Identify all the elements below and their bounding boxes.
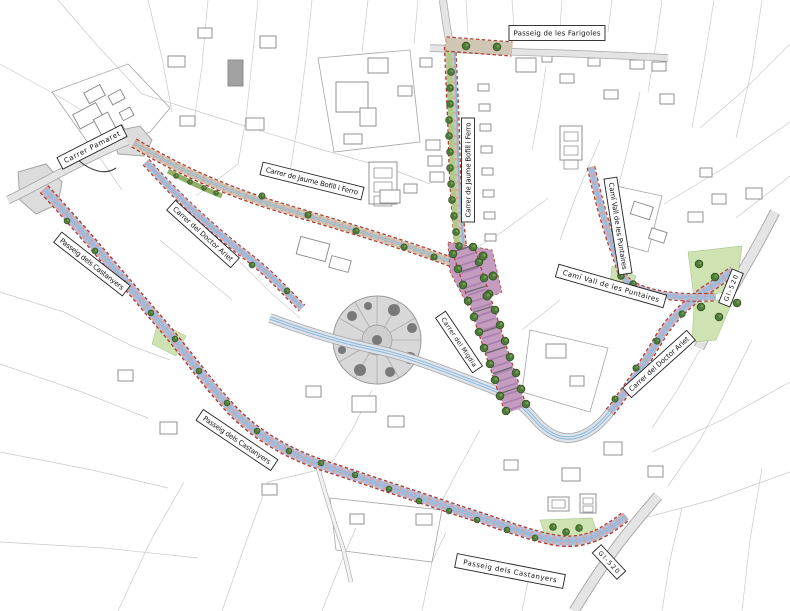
street-label-jaume-bofill-2: Carrer de Jaume Bofill i Ferro — [462, 118, 475, 222]
tree-icon — [563, 529, 570, 536]
tree-icon — [447, 101, 454, 108]
tree-icon — [654, 338, 660, 344]
tree-icon — [550, 524, 557, 531]
tree-icon — [456, 243, 463, 250]
tree-icon — [496, 321, 504, 329]
tree-icon — [148, 310, 154, 316]
tree-icon — [449, 197, 456, 204]
tree-icon — [259, 193, 265, 199]
tree-icon — [464, 297, 472, 305]
tree-icon — [506, 353, 514, 361]
street-label-text: Carrer del Migdia — [439, 316, 477, 368]
tree-icon — [213, 190, 218, 195]
tree-icon — [474, 517, 480, 523]
tree-icon — [695, 260, 703, 268]
tree-icon — [715, 313, 723, 321]
tree-icon — [173, 173, 178, 178]
tree-icon — [353, 228, 359, 234]
tree-icon — [448, 69, 455, 76]
street-label-jaume-bofill-1: Carrer de Jaume Bofill i Ferro — [260, 162, 364, 200]
tree-icon — [483, 292, 491, 300]
tree-icon — [576, 525, 583, 532]
tree-icon — [446, 133, 453, 140]
tree-icon — [733, 299, 741, 307]
street-label-text: Carrer de Jaume Bofill i Ferro — [265, 166, 359, 197]
tree-icon — [386, 486, 392, 492]
tree-icon — [451, 213, 458, 220]
tree-icon — [64, 218, 70, 224]
tree-icon — [493, 43, 501, 51]
tree-icon — [447, 85, 454, 92]
tree-icon — [480, 274, 488, 282]
tree-icon — [489, 272, 497, 280]
tree-icon — [711, 273, 719, 281]
tree-icon — [249, 262, 255, 268]
tree-icon — [446, 117, 453, 124]
street-label-castanyers-3: Passeig dels Castanyers — [455, 554, 566, 589]
tree-icon — [447, 149, 454, 156]
tree-icon — [479, 252, 487, 260]
tree-icon — [201, 185, 206, 190]
tree-icon — [254, 428, 260, 434]
map-page: { "map": { "type": "urban-plan-site-map"… — [0, 0, 790, 611]
street-label-text: Passeig de les Farigoles — [514, 29, 601, 37]
tree-icon — [453, 229, 460, 236]
tree-icon — [92, 248, 98, 254]
tree-icon — [502, 407, 510, 415]
street-label-passeig-de-les-farigoles: Passeig de les Farigoles — [509, 26, 605, 41]
tree-icon — [416, 498, 422, 504]
tree-icon — [187, 179, 192, 184]
street-label-puntaires-2: Camí Vall de les Puntaires — [555, 264, 666, 307]
tree-icon — [504, 527, 510, 533]
street-passeig-dels-castanyers — [44, 189, 626, 541]
tree-icon — [305, 212, 311, 218]
tree-icon — [469, 243, 477, 251]
tree-icon — [532, 535, 538, 541]
tree-icon — [196, 368, 202, 374]
tree-icon — [448, 181, 455, 188]
tree-icon — [286, 448, 292, 454]
tree-icon — [318, 460, 324, 466]
tree-icon — [446, 508, 452, 514]
tree-icon — [449, 250, 457, 258]
tree-icon — [475, 328, 483, 336]
tree-icon — [633, 365, 639, 371]
tree-icon — [491, 306, 499, 314]
tree-icon — [512, 369, 520, 377]
tree-icon — [224, 400, 230, 406]
tree-icon — [501, 337, 509, 345]
tree-icon — [612, 396, 618, 402]
tree-icon — [697, 303, 705, 311]
tree-icon — [462, 42, 470, 50]
tree-icon — [491, 376, 499, 384]
tree-icon — [284, 288, 290, 294]
street-label-doctor-ariet-1: Carrer del Doctor Ariet — [167, 200, 240, 267]
tree-icon — [470, 313, 478, 321]
tree-icon — [431, 254, 437, 260]
site-plan-map: Carrer Pamaret Passeig de les Farigoles … — [0, 0, 790, 611]
tree-icon — [352, 472, 358, 478]
tree-icon — [447, 165, 454, 172]
tree-icon — [459, 281, 467, 289]
tree-icon — [480, 344, 488, 352]
tree-icon — [401, 244, 407, 250]
tree-icon — [517, 385, 525, 393]
tree-icon — [454, 265, 462, 273]
street-label-text: Carrer de Jaume Bofill i Ferro — [464, 123, 472, 218]
tree-icon — [522, 400, 530, 408]
tree-icon — [486, 360, 494, 368]
tree-icon — [172, 336, 178, 342]
tree-icon — [496, 392, 504, 400]
tree-icon — [679, 311, 685, 317]
